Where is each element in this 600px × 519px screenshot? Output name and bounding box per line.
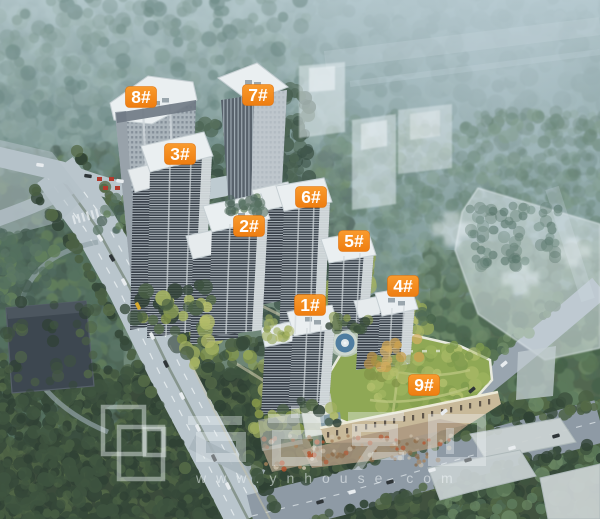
svg-text:4#: 4#: [393, 276, 413, 296]
svg-text:2#: 2#: [239, 216, 259, 236]
svg-text:1#: 1#: [300, 295, 320, 315]
svg-text:5#: 5#: [344, 231, 364, 251]
svg-text:8#: 8#: [131, 87, 151, 107]
svg-text:3#: 3#: [170, 144, 190, 164]
svg-text:9#: 9#: [414, 375, 434, 395]
svg-text:www.ynhouse.com: www.ynhouse.com: [195, 470, 463, 486]
svg-text:7#: 7#: [248, 85, 268, 105]
svg-text:6#: 6#: [301, 187, 321, 207]
